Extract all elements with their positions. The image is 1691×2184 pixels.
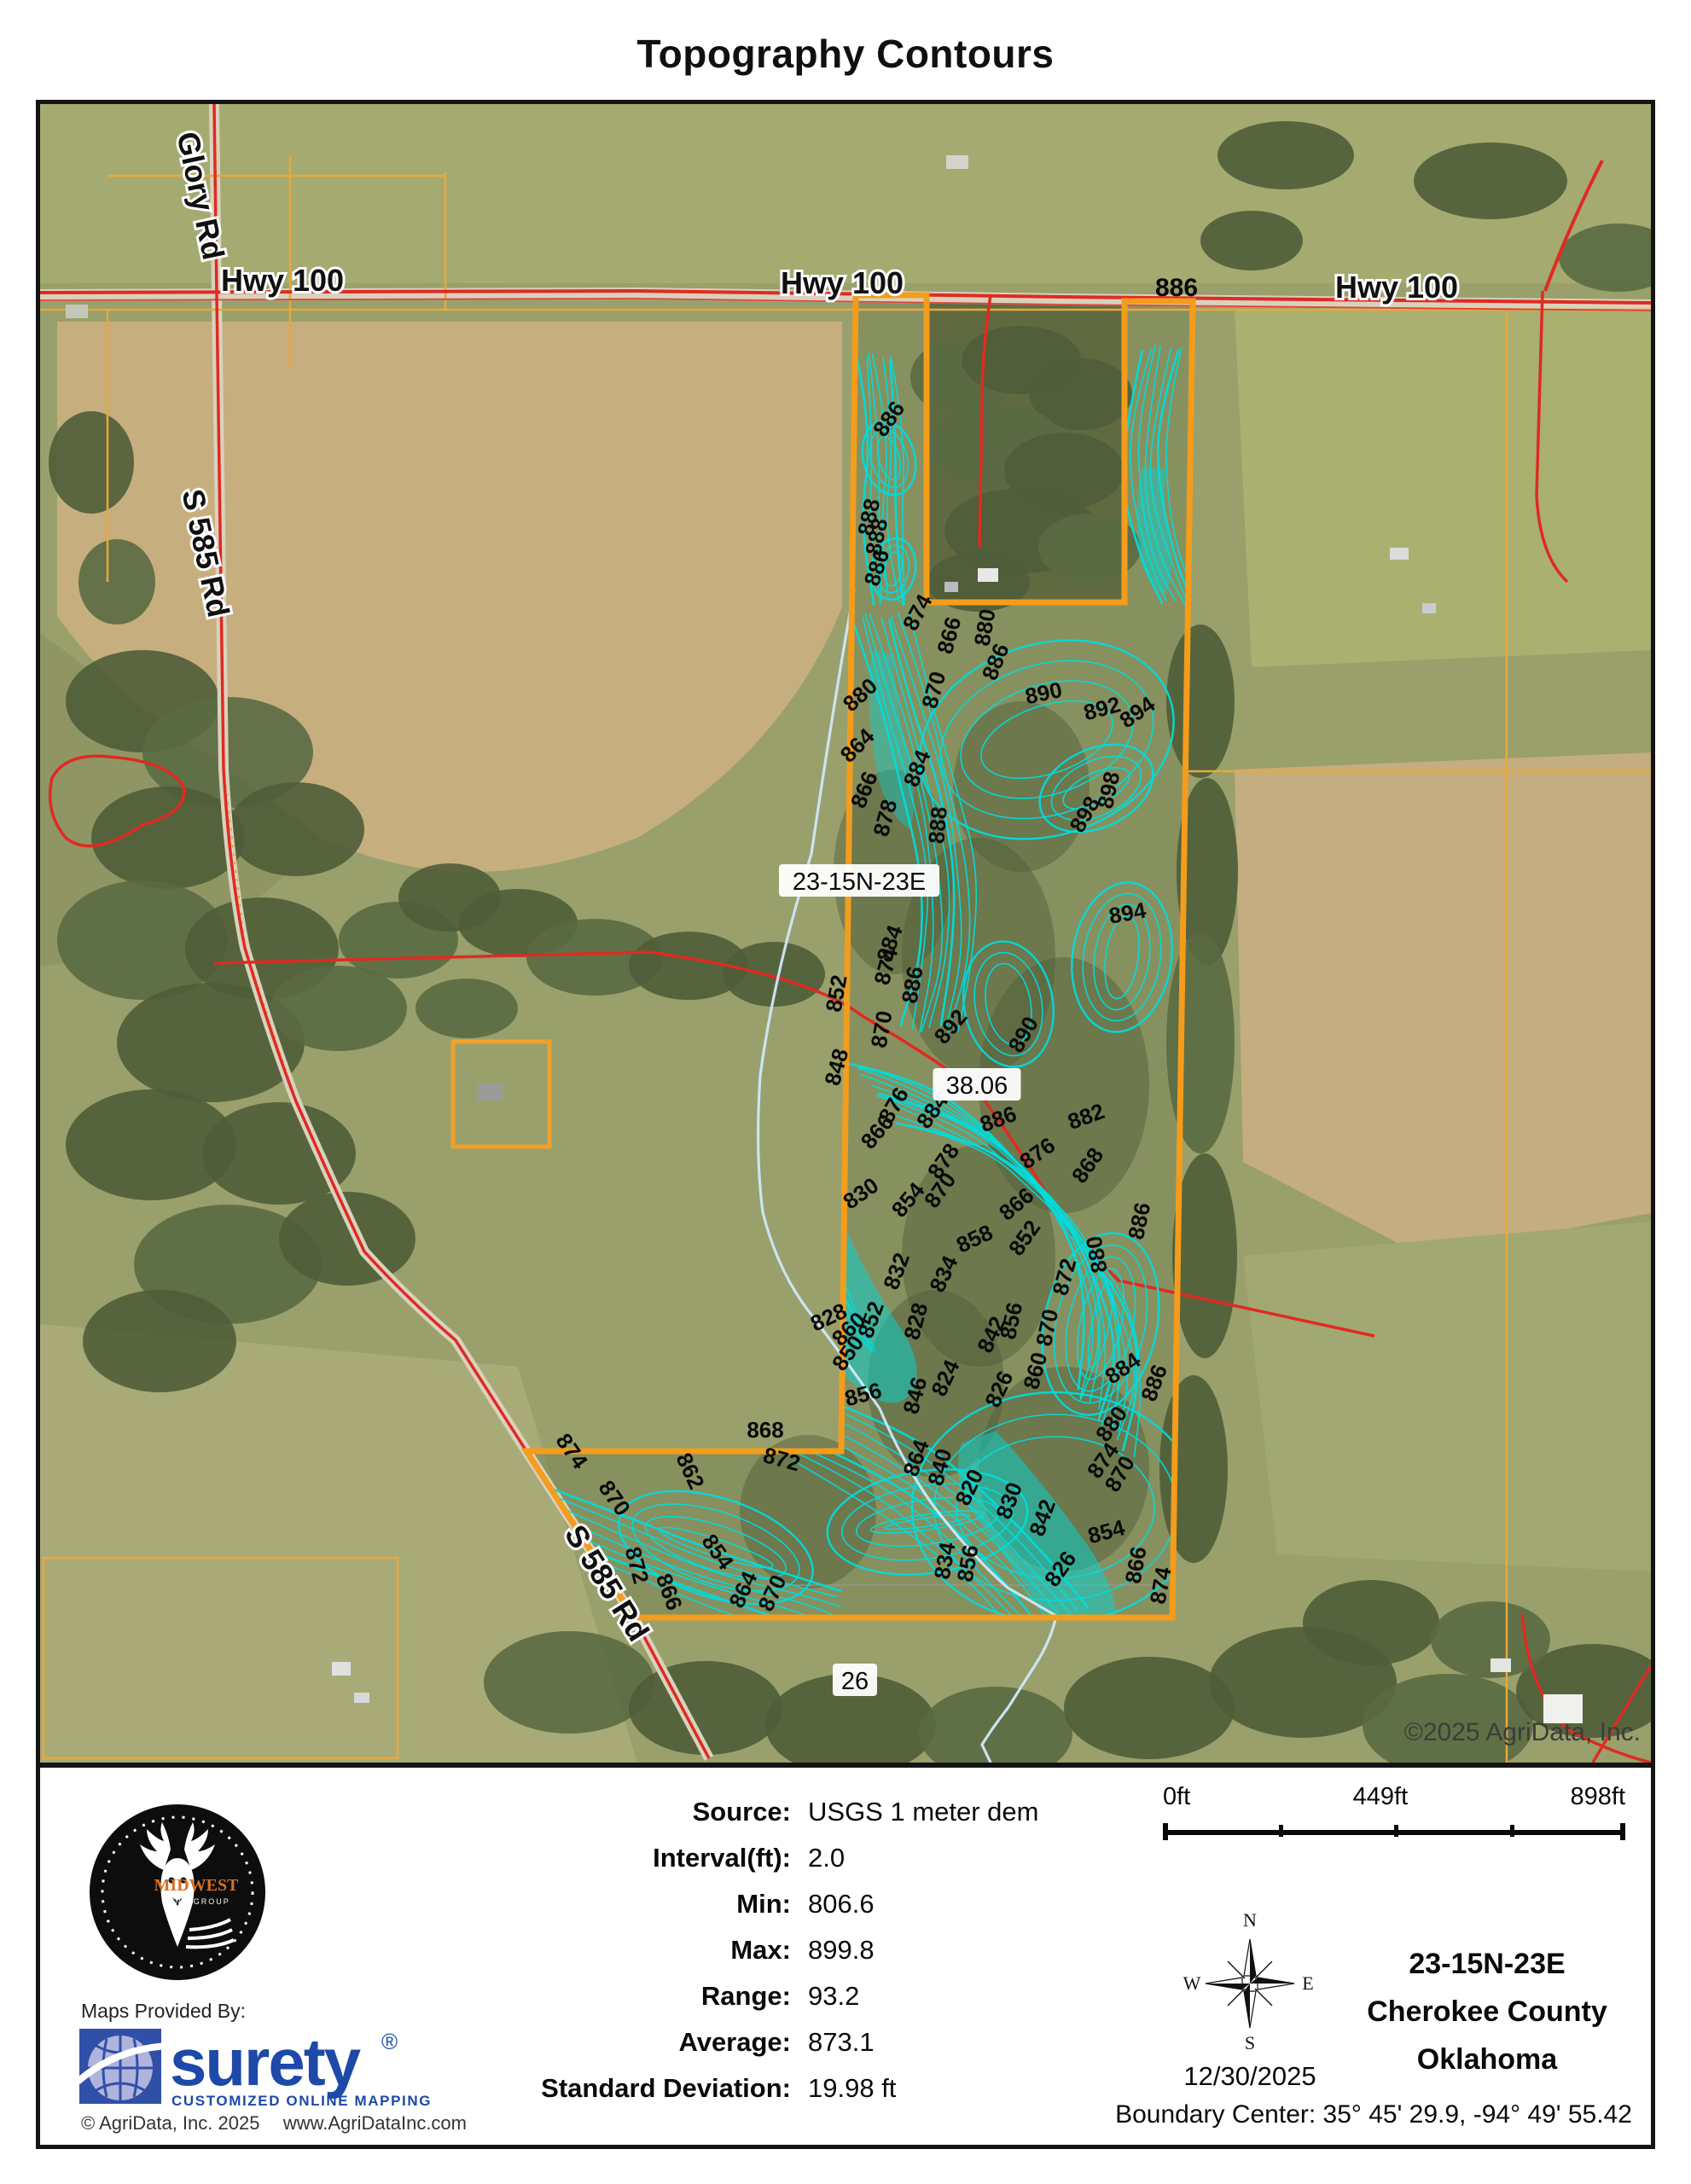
location-state: Oklahoma: [1327, 2036, 1647, 2083]
plain-label: 886: [1155, 274, 1198, 302]
location-section: 23-15N-23E: [1327, 1940, 1647, 1988]
scale-bar-labels: 0ft449ft898ft: [1163, 1783, 1625, 1811]
scale-label: 449ft: [1353, 1783, 1409, 1811]
scale-label: 898ft: [1571, 1783, 1626, 1811]
svg-text:E: E: [1302, 1972, 1313, 1994]
stat-value: USGS 1 meter dem: [808, 1797, 1038, 1827]
page-title: Topography Contours: [0, 31, 1691, 77]
tree-blob: [1414, 142, 1567, 219]
stat-label: Source:: [347, 1797, 791, 1827]
tree-blob: [1166, 624, 1235, 778]
scale-bar: 0ft449ft898ft: [1163, 1783, 1625, 1842]
midwest-logo-text: MIDWEST: [154, 1876, 240, 1895]
provider-heading: Maps Provided By:: [81, 2000, 246, 2023]
svg-text:N: N: [1243, 1911, 1257, 1931]
stat-value: 806.6: [808, 1889, 875, 1920]
stat-value: 93.2: [808, 1981, 859, 2012]
building: [946, 155, 968, 169]
info-panel: MIDWEST LAND GROUP Maps Provided By: sur…: [40, 1768, 1651, 2140]
stat-row: Min:806.6: [347, 1889, 1098, 1935]
tree-blob: [1200, 211, 1303, 270]
agridata-copyright: © AgriData, Inc. 2025: [81, 2112, 259, 2135]
stat-label: Average:: [347, 2027, 791, 2058]
boxed-label: 23-15N-23E: [793, 868, 926, 896]
building: [944, 582, 958, 592]
stat-label: Max:: [347, 1935, 791, 1966]
tree-blob: [953, 701, 1090, 872]
tree-blob: [270, 966, 407, 1051]
stat-row: Standard Deviation:19.98 ft: [347, 2073, 1098, 2119]
tree-blob: [49, 411, 134, 514]
building: [66, 305, 88, 318]
surety-wordmark: surety: [170, 2024, 361, 2100]
svg-text:W: W: [1183, 1972, 1201, 1994]
midwest-logo-subtext: LAND GROUP: [162, 1897, 230, 1906]
building: [477, 1083, 503, 1101]
elevation-label: 888: [923, 805, 952, 845]
building: [1422, 603, 1436, 613]
scale-label: 0ft: [1163, 1783, 1190, 1811]
stat-value: 19.98 ft: [808, 2073, 896, 2104]
map-date: 12/30/2025: [1165, 2061, 1335, 2092]
building: [1491, 1658, 1511, 1672]
tree-blob: [1217, 121, 1354, 189]
stat-label: Interval(ft):: [347, 1843, 791, 1873]
tree-blob: [629, 1661, 782, 1755]
stat-label: Standard Deviation:: [347, 2073, 791, 2104]
stat-row: Source:USGS 1 meter dem: [347, 1797, 1098, 1843]
stat-value: 899.8: [808, 1935, 875, 1966]
stat-value: 2.0: [808, 1843, 845, 1873]
tree-blob: [83, 1290, 236, 1392]
boundary-center: Boundary Center: 35° 45' 29.9, -94° 49' …: [1096, 2100, 1651, 2129]
tree-blob: [1166, 932, 1235, 1153]
tree-blob: [484, 1631, 654, 1734]
boxed-label: 38.06: [946, 1072, 1008, 1100]
stat-row: Average:873.1: [347, 2027, 1098, 2073]
stat-row: Range:93.2: [347, 1981, 1098, 2027]
elevation-label: 868: [747, 1417, 783, 1443]
map-viewport[interactable]: 8868888888868748668808868808708908928948…: [40, 104, 1651, 1763]
building: [332, 1662, 351, 1676]
road-label: Hwy 100: [781, 265, 904, 300]
tree-blob: [415, 979, 518, 1038]
stat-label: Min:: [347, 1889, 791, 1920]
stat-label: Range:: [347, 1981, 791, 2012]
building: [978, 568, 998, 582]
building: [1390, 548, 1409, 560]
stat-value: 873.1: [808, 2027, 875, 2058]
tree-blob: [78, 539, 155, 624]
map-frame: 8868888888868748668808868808708908928948…: [36, 100, 1655, 2149]
map-copyright: ©2025 AgriData, Inc.: [1404, 1718, 1641, 1746]
building: [354, 1693, 369, 1703]
location-county: Cherokee County: [1327, 1988, 1647, 2036]
tree-blob: [1159, 1375, 1228, 1563]
boxed-label: 26: [841, 1668, 869, 1695]
topo-stats: Source:USGS 1 meter demInterval(ft):2.0M…: [347, 1797, 1098, 2119]
tree-blob: [1064, 1657, 1235, 1759]
page: Topography Contours: [0, 0, 1691, 2184]
svg-text:S: S: [1245, 2032, 1255, 2053]
stat-row: Interval(ft):2.0: [347, 1843, 1098, 1889]
compass-rose-icon: N S W E: [1182, 1911, 1318, 2056]
location-block: 23-15N-23E Cherokee County Oklahoma: [1327, 1940, 1647, 2083]
stat-row: Max:899.8: [347, 1935, 1098, 1981]
scale-bar-rule: [1163, 1823, 1625, 1842]
road-label: Hwy 100: [1335, 270, 1458, 305]
tree-blob: [228, 782, 364, 876]
midwest-land-group-logo: MIDWEST LAND GROUP: [87, 1802, 268, 1983]
map-canvas: 8868888888868748668808868808708908928948…: [40, 104, 1651, 1763]
road-label: Hwy 100: [221, 263, 344, 298]
tree-blob: [1303, 1580, 1439, 1665]
